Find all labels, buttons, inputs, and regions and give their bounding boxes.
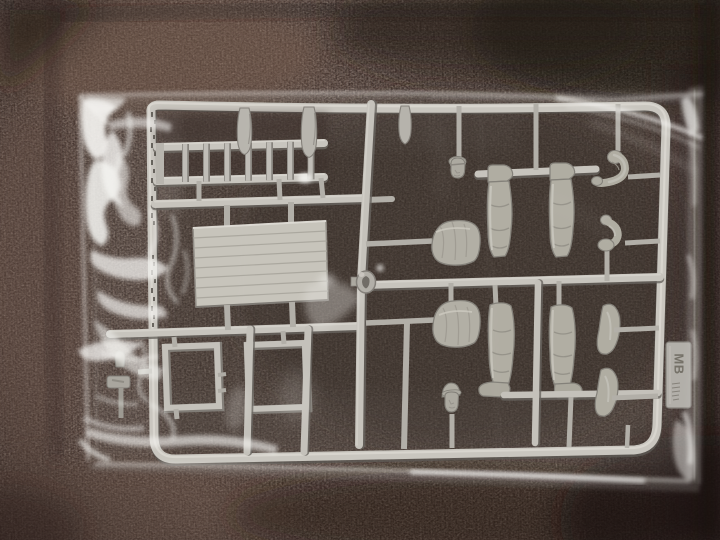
svg-text:MB: MB — [672, 353, 687, 374]
